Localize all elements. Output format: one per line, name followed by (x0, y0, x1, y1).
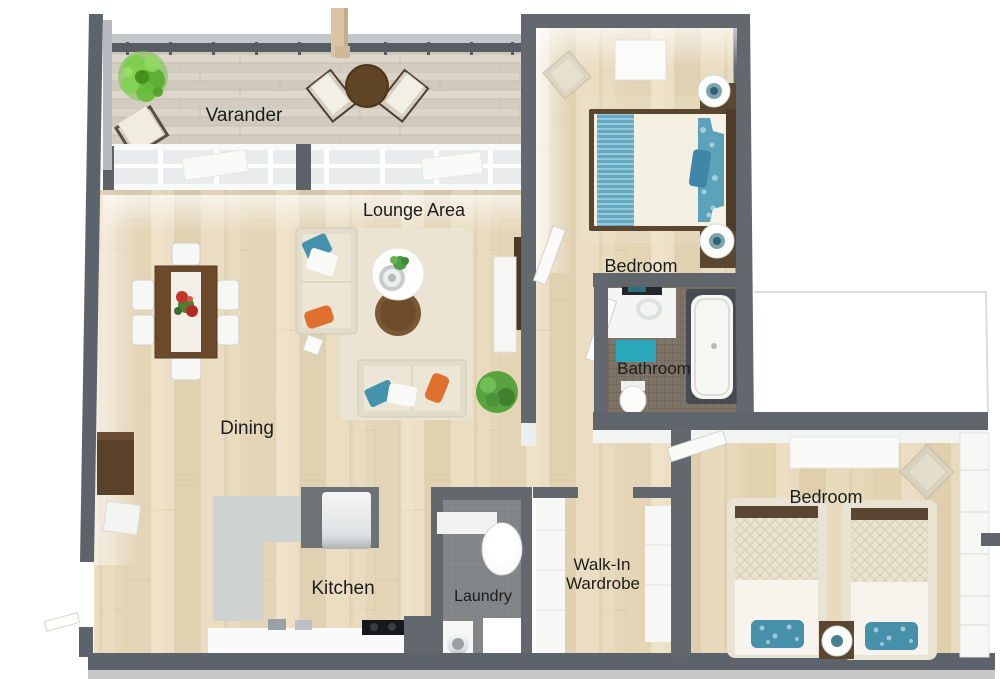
svg-text:Kitchen: Kitchen (311, 578, 374, 599)
svg-text:Wardrobe: Wardrobe (566, 574, 640, 593)
svg-text:Bedroom: Bedroom (789, 487, 862, 507)
svg-text:Bathroom: Bathroom (617, 359, 691, 378)
svg-text:Lounge Area: Lounge Area (363, 200, 466, 220)
svg-text:Bedroom: Bedroom (604, 256, 677, 276)
svg-text:Laundry: Laundry (454, 588, 512, 605)
svg-text:Dining: Dining (220, 418, 274, 439)
svg-text:Varander: Varander (206, 105, 283, 126)
svg-text:Walk-In: Walk-In (574, 555, 631, 574)
